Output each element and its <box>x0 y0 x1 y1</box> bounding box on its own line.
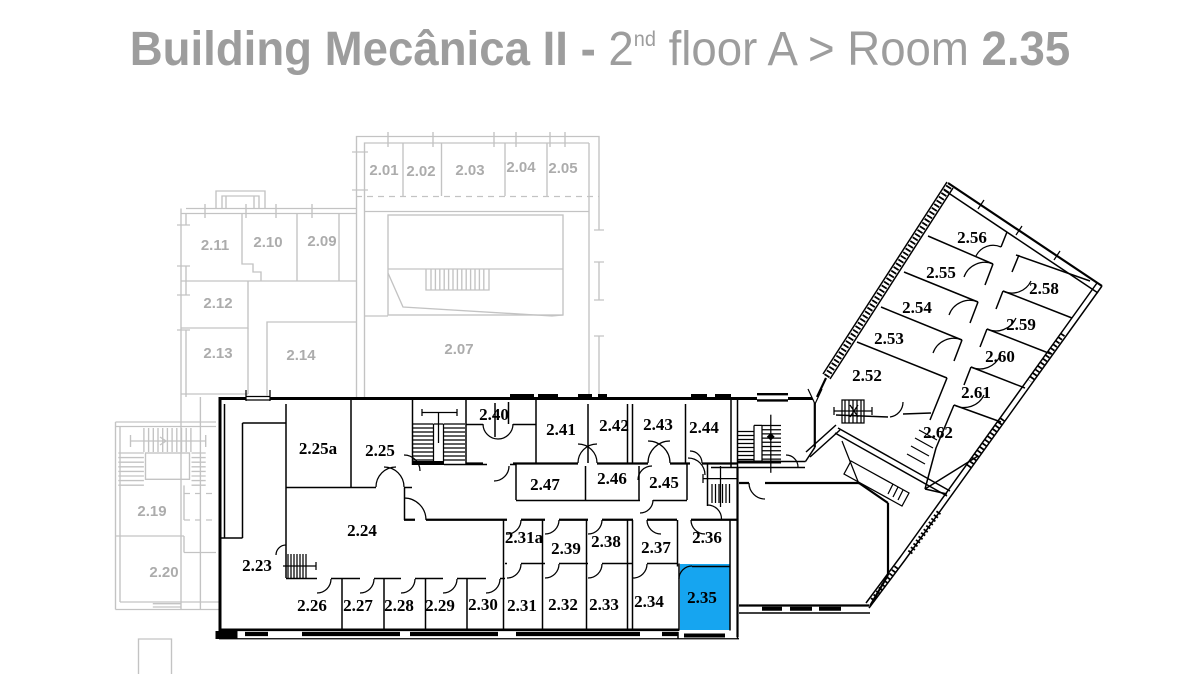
svg-text:2.20: 2.20 <box>149 564 178 581</box>
svg-text:2.03: 2.03 <box>455 162 484 179</box>
svg-text:2.40: 2.40 <box>479 405 509 424</box>
svg-text:2.35: 2.35 <box>687 588 717 607</box>
svg-text:2.11: 2.11 <box>201 237 229 254</box>
svg-text:2.44: 2.44 <box>689 418 719 437</box>
svg-text:2.09: 2.09 <box>307 233 336 250</box>
svg-text:2.29: 2.29 <box>425 596 455 615</box>
svg-text:2.01: 2.01 <box>369 162 398 179</box>
svg-text:2.55: 2.55 <box>926 263 956 282</box>
svg-text:2.61: 2.61 <box>961 383 991 402</box>
svg-text:2.25a: 2.25a <box>299 439 338 458</box>
svg-text:2.04: 2.04 <box>506 159 536 176</box>
svg-text:2.39: 2.39 <box>551 539 581 558</box>
svg-text:2.12: 2.12 <box>203 295 232 312</box>
svg-text:2.56: 2.56 <box>957 228 987 247</box>
svg-text:2.23: 2.23 <box>242 556 272 575</box>
svg-text:2.47: 2.47 <box>530 475 560 494</box>
svg-text:2.02: 2.02 <box>406 163 435 180</box>
svg-text:2.25: 2.25 <box>365 441 395 460</box>
svg-text:2.05: 2.05 <box>548 160 577 177</box>
svg-text:2.31: 2.31 <box>507 596 537 615</box>
svg-text:2.45: 2.45 <box>649 473 679 492</box>
svg-text:2.19: 2.19 <box>137 503 166 520</box>
svg-text:2.32: 2.32 <box>548 595 578 614</box>
svg-text:2.31a: 2.31a <box>505 528 544 547</box>
svg-text:2.24: 2.24 <box>347 521 377 540</box>
svg-text:2.30: 2.30 <box>468 595 498 614</box>
svg-text:Building Mecânica II - 2nd flo: Building Mecânica II - 2nd floor A > Roo… <box>130 22 1071 75</box>
svg-text:2.28: 2.28 <box>384 596 414 615</box>
svg-text:2.37: 2.37 <box>641 538 671 557</box>
svg-text:2.33: 2.33 <box>589 595 619 614</box>
svg-text:2.10: 2.10 <box>253 234 282 251</box>
svg-text:2.46: 2.46 <box>597 469 627 488</box>
svg-text:2.62: 2.62 <box>923 423 953 442</box>
svg-text:2.42: 2.42 <box>599 416 629 435</box>
svg-text:2.58: 2.58 <box>1029 279 1059 298</box>
svg-text:2.38: 2.38 <box>591 532 621 551</box>
svg-text:2.52: 2.52 <box>852 366 882 385</box>
svg-text:2.43: 2.43 <box>643 415 673 434</box>
svg-text:2.26: 2.26 <box>297 596 327 615</box>
svg-text:2.27: 2.27 <box>343 596 373 615</box>
svg-text:2.07: 2.07 <box>444 341 473 358</box>
svg-text:2.41: 2.41 <box>546 420 576 439</box>
svg-text:2.59: 2.59 <box>1006 315 1036 334</box>
svg-text:2.14: 2.14 <box>286 347 316 364</box>
svg-text:2.53: 2.53 <box>874 329 904 348</box>
svg-text:2.36: 2.36 <box>692 528 722 547</box>
svg-text:2.13: 2.13 <box>203 345 232 362</box>
svg-text:2.34: 2.34 <box>634 592 664 611</box>
svg-text:2.54: 2.54 <box>902 298 932 317</box>
svg-text:2.60: 2.60 <box>985 347 1015 366</box>
